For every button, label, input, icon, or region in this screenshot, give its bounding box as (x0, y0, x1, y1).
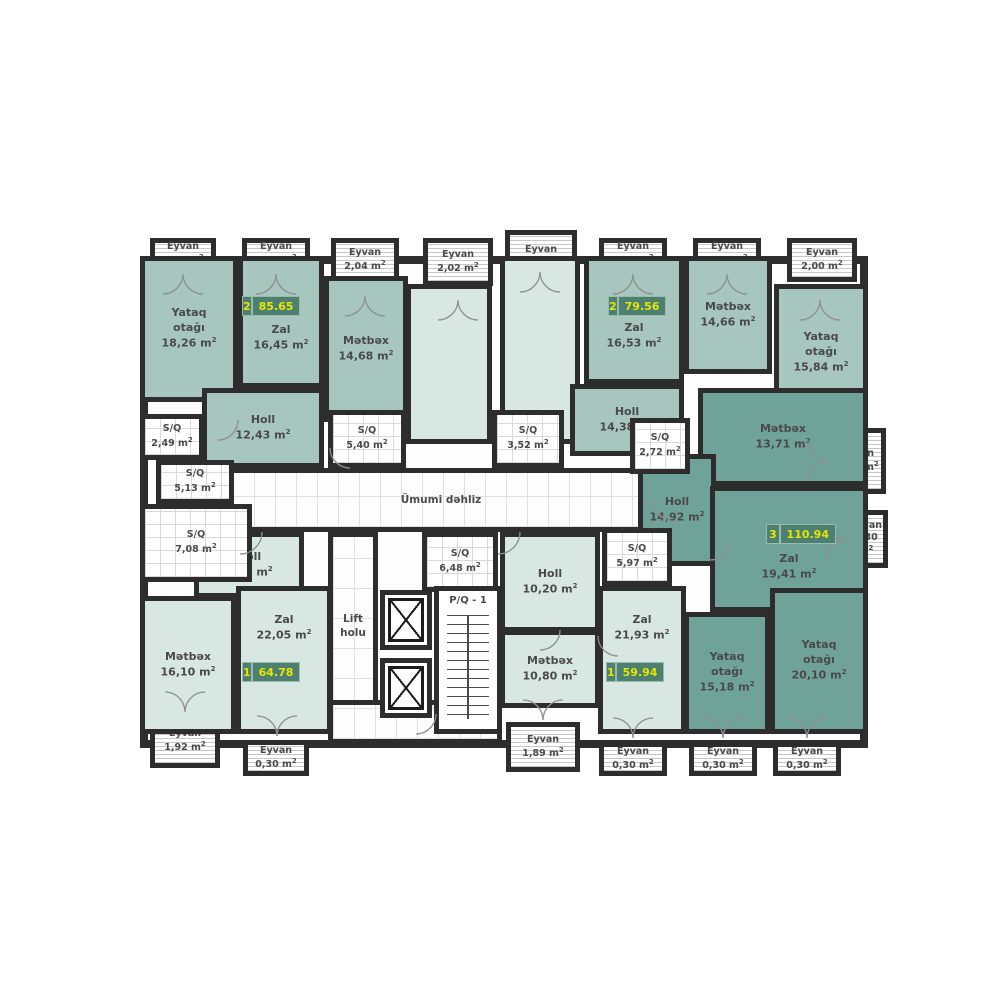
lift-icon (388, 598, 424, 642)
room-label: Holl10,20 m2 (523, 567, 578, 597)
room-label: Mətbəx14,68 m2 (339, 334, 394, 364)
room-area: 2,00 m2 (801, 259, 843, 273)
badge-total-area: 59.94 (617, 663, 664, 681)
balcony-b12: Eyvan0,30 m2 (243, 740, 309, 776)
balcony-b8: Eyvan2,00 m2 (787, 238, 857, 282)
room-label: S/Q7,08 m2 (175, 529, 217, 557)
room-area: 5,13 m2 (174, 481, 216, 496)
room-label: Eyvan (525, 244, 557, 256)
room-area: 2,72 m2 (639, 445, 681, 460)
room-area: 14,68 m2 (339, 349, 394, 365)
room-label: Mətbəx10,80 m2 (523, 654, 578, 684)
room-holl-tl: Holl12,43 m2 (202, 388, 324, 468)
balcony-b15: Eyvan0,30 m2 (689, 742, 757, 776)
badge-room-count: 1 (243, 663, 253, 681)
room-label: Zal19,41 m2 (762, 552, 817, 582)
room-label: S/Q6,48 m2 (439, 548, 481, 576)
room-label: Eyvan0,30 m2 (702, 746, 744, 772)
apartment-badge-apt-79[interactable]: 279.56 (608, 296, 666, 316)
room-area: 6,48 m2 (439, 561, 481, 576)
room-metbex-bl: Mətbəx16,10 m2 (140, 596, 236, 734)
apartment-badge-apt-59[interactable]: 159.94 (606, 662, 664, 682)
room-area: 2,04 m2 (344, 259, 386, 273)
floor-plan: Ümumi dəhlizLiftholuHoll8,48 m2Mətbəx16,… (0, 0, 1001, 1001)
lift-icon (388, 666, 424, 710)
balcony-b13: Eyvan1,89 m2 (506, 722, 580, 772)
room-sq-648: S/Q6,48 m2 (422, 532, 498, 592)
balcony-b16: Eyvan0,30 m2 (773, 742, 841, 776)
room-zal-tr: Zal16,53 m2 (584, 256, 684, 384)
room-label: Zal22,05 m2 (257, 613, 312, 643)
room-sq-352: S/Q3,52 m2 (492, 410, 564, 468)
room-area: 10,20 m2 (523, 582, 578, 598)
room-label: Yataqotağı18,26 m2 (162, 306, 217, 351)
badge-total-area: 110.94 (781, 525, 835, 543)
room-label: Mətbəx16,10 m2 (161, 650, 216, 680)
room-area: 15,84 m2 (794, 360, 849, 376)
room-label: Yataqotağı20,10 m2 (792, 638, 847, 683)
room-label: Zal16,53 m2 (607, 321, 662, 351)
room-label: Liftholu (340, 612, 366, 640)
room-label: Holl12,43 m2 (236, 413, 291, 443)
room-label: Eyvan0,30 m2 (786, 746, 828, 772)
balcony-b4: Eyvan2,02 m2 (423, 238, 493, 286)
room-area: 2,49 m2 (151, 436, 193, 451)
room-sq-513: S/Q5,13 m2 (156, 460, 234, 504)
room-umumi: Ümumi dəhliz (228, 468, 654, 532)
room-lift1 (380, 590, 432, 650)
room-area: 19,41 m2 (762, 567, 817, 583)
badge-total-area: 85.65 (253, 297, 300, 315)
room-area: 7,08 m2 (175, 542, 217, 557)
room-zal-br: Zal21,93 m2 (598, 586, 686, 734)
room-area: 18,26 m2 (162, 336, 217, 352)
room-area: 16,10 m2 (161, 665, 216, 681)
room-label: Eyvan2,00 m2 (801, 247, 843, 273)
room-label: S/Q5,40 m2 (346, 425, 388, 453)
room-label: S/Q3,52 m2 (507, 425, 549, 453)
apartment-badge-apt-64[interactable]: 164.78 (242, 662, 300, 682)
room-area: 15,18 m2 (700, 680, 755, 696)
room-metbex-tr: Mətbəx14,66 m2 (684, 256, 772, 374)
room-label: Mətbəx14,66 m2 (701, 300, 756, 330)
room-label: Zal21,93 m2 (615, 613, 670, 643)
room-yataq-br2: Yataqotağı20,10 m2 (770, 588, 868, 734)
room-label: Eyvan1,89 m2 (522, 734, 564, 760)
room-area: 14,66 m2 (701, 315, 756, 331)
room-sq-249: S/Q2,49 m2 (140, 414, 204, 460)
room-area: 3,52 m2 (507, 438, 549, 453)
balcony-b14: Eyvan0,30 m2 (599, 742, 667, 776)
room-area: 5,97 m2 (616, 556, 658, 571)
room-area: 16,53 m2 (607, 336, 662, 352)
room-metbex-tl: Mətbəx14,68 m2 (324, 276, 408, 422)
room-area: 0,30 m2 (255, 757, 297, 771)
room-area: 2,02 m2 (437, 261, 479, 275)
apartment-badge-apt-110[interactable]: 3110.94 (766, 524, 836, 544)
room-label: S/Q2,72 m2 (639, 432, 681, 460)
room-area: 0,30 m2 (702, 758, 744, 772)
room-area: 10,80 m2 (523, 669, 578, 685)
room-area: 13,71 m2 (756, 437, 811, 453)
room-sq-540: S/Q5,40 m2 (328, 410, 406, 468)
room-label: Ümumi dəhliz (401, 493, 482, 507)
room-area: 14,92 m2 (650, 510, 705, 526)
badge-total-area: 64.78 (253, 663, 300, 681)
room-label: S/Q2,49 m2 (151, 423, 193, 451)
room-lift2 (380, 658, 432, 718)
room-area: 16,45 m2 (254, 338, 309, 354)
room-sq-272: S/Q2,72 m2 (630, 418, 690, 474)
room-label: Eyvan2,04 m2 (344, 247, 386, 273)
badge-room-count: 2 (609, 297, 619, 315)
room-area: 22,05 m2 (257, 628, 312, 644)
badge-room-count: 2 (243, 297, 253, 315)
room-zal-tl: Zal16,45 m2 (238, 256, 324, 388)
room-label: S/Q5,13 m2 (174, 468, 216, 496)
room-label: Holl14,92 m2 (650, 495, 705, 525)
room-yataq-br1: Yataqotağı15,18 m2 (684, 612, 770, 734)
room-area: 0,30 m2 (786, 758, 828, 772)
room-yataq-tl: Yataqotağı18,26 m2 (140, 256, 238, 402)
room-metbex-r: Mətbəx13,71 m2 (698, 388, 868, 486)
room-area: 21,93 m2 (615, 628, 670, 644)
room-room-m1 (406, 284, 492, 444)
room-stairs: P/Q - 1 (434, 586, 502, 734)
apartment-badge-apt-85[interactable]: 285.65 (242, 296, 300, 316)
stair-treads (447, 615, 489, 719)
room-holl-br: Holl10,20 m2 (500, 532, 600, 632)
room-label: P/Q - 1 (439, 594, 497, 608)
room-label: Zal16,45 m2 (254, 323, 309, 353)
room-sq-708: S/Q7,08 m2 (140, 504, 252, 582)
room-label: Eyvan2,02 m2 (437, 249, 479, 275)
room-area: 20,10 m2 (792, 668, 847, 684)
room-area: 12,43 m2 (236, 428, 291, 444)
room-metbex-bm: Mətbəx10,80 m2 (500, 630, 600, 708)
room-area: 1,89 m2 (522, 746, 564, 760)
badge-room-count: 3 (767, 525, 781, 543)
room-sq-597: S/Q5,97 m2 (602, 528, 672, 586)
room-area: 0,30 m2 (612, 758, 654, 772)
room-label: Yataqotağı15,84 m2 (794, 330, 849, 375)
room-label: Mətbəx13,71 m2 (756, 422, 811, 452)
room-label: Eyvan0,30 m2 (612, 746, 654, 772)
room-label: Yataqotağı15,18 m2 (700, 650, 755, 695)
room-area: 1,92 m2 (164, 740, 206, 754)
badge-total-area: 79.56 (619, 297, 666, 315)
room-area: 5,40 m2 (346, 438, 388, 453)
badge-room-count: 1 (607, 663, 617, 681)
room-zal-bl: Zal22,05 m2 (236, 586, 332, 734)
room-label: Eyvan0,30 m2 (255, 745, 297, 771)
room-label: S/Q5,97 m2 (616, 543, 658, 571)
